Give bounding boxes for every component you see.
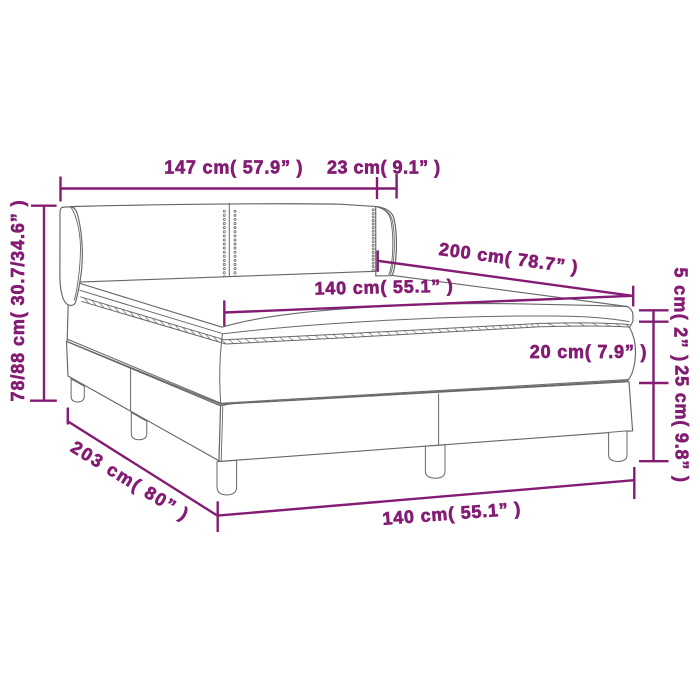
svg-text:5 cm( 2” ): 5 cm( 2” )	[671, 267, 691, 362]
svg-text:78/88 cm( 30.7/34.6” ): 78/88 cm( 30.7/34.6” )	[8, 200, 28, 402]
svg-text:140 cm( 55.1” ): 140 cm( 55.1” )	[314, 276, 453, 299]
svg-text:25 cm( 9.8” ): 25 cm( 9.8” )	[672, 365, 692, 482]
svg-text:147 cm( 57.9” ): 147 cm( 57.9” )	[164, 158, 303, 178]
svg-text:20 cm( 7.9” ): 20 cm( 7.9” )	[530, 342, 647, 362]
svg-text:23 cm( 9.1” ): 23 cm( 9.1” )	[327, 158, 441, 178]
